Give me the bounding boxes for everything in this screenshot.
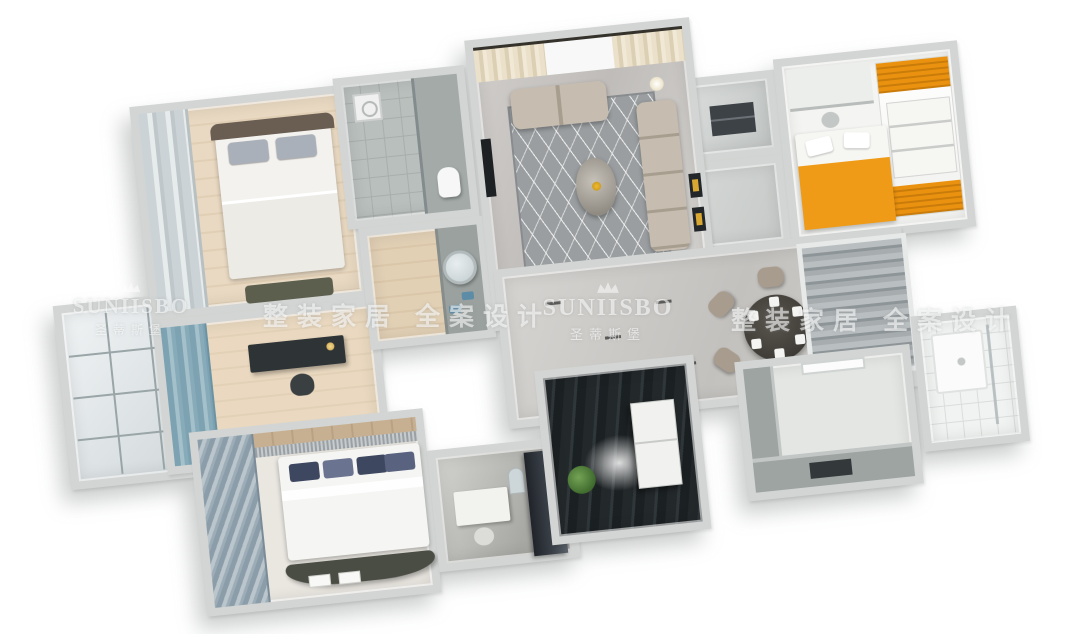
laundry-cabinet (630, 399, 683, 489)
desk-lamp (326, 342, 335, 351)
room-vanity (358, 216, 496, 351)
office-desk (453, 487, 510, 526)
kids-pillow (844, 132, 870, 148)
study-chair (289, 372, 315, 396)
tile-joint (545, 301, 561, 306)
orange-wardrobe-band (889, 180, 964, 217)
office-chair (473, 526, 495, 546)
orange-blanket (798, 157, 896, 230)
orange-wardrobe-band (876, 56, 951, 93)
kids-chair (821, 111, 841, 129)
room-kitchen (734, 344, 924, 502)
art-print (692, 179, 699, 192)
navy-pillow (288, 461, 320, 482)
shower-glass (986, 324, 999, 424)
shower-drain (957, 357, 966, 366)
kitchen-window (801, 357, 866, 376)
room-laundry (534, 355, 711, 546)
living-window (544, 36, 614, 75)
blue-towel (449, 305, 462, 314)
room-master-bedroom (129, 84, 370, 321)
cream-curtain-right (611, 29, 685, 68)
kids-desk (786, 61, 874, 112)
plate (792, 306, 803, 317)
washing-machine (352, 92, 383, 123)
kids-pillow (805, 135, 834, 157)
dining-chair (705, 288, 737, 321)
table-flowers (592, 181, 602, 191)
page-canvas: { "scene": { "type": "3D apartment floor… (0, 0, 1080, 608)
cream-curtain-left (473, 43, 547, 82)
shower-tray (930, 329, 988, 394)
room-second-bedroom (189, 408, 442, 617)
tile-joint (655, 300, 671, 305)
master-bed (214, 120, 345, 279)
toilet (436, 166, 461, 198)
room-bathroom2 (910, 306, 1030, 452)
room-kids-bedroom (773, 40, 977, 245)
plate (748, 311, 759, 322)
navy-pillow (322, 458, 354, 479)
floor-lamp (649, 76, 664, 91)
wall-art-frame (692, 207, 706, 232)
tv-panel (481, 139, 497, 198)
navy-pillow (384, 451, 416, 472)
arch-mirror (507, 467, 526, 495)
floor-magazine (338, 571, 361, 585)
plate (769, 296, 780, 307)
floor-magazine (308, 574, 331, 588)
master-wardrobe (138, 109, 209, 312)
plate (795, 334, 806, 345)
tile-joint (605, 335, 621, 340)
master-pillow (228, 139, 270, 165)
closet-shelf (709, 102, 756, 136)
study-desk (248, 335, 346, 373)
kids-bed (795, 125, 897, 230)
blue-towel (461, 291, 474, 300)
dining-chair (757, 266, 785, 289)
bedroom2-blinds (197, 434, 270, 608)
bedroom2-bed (278, 443, 430, 561)
floorplan-render (42, 0, 1044, 633)
wardrobe-drawers (886, 96, 958, 178)
plate (751, 338, 762, 349)
washer-door (361, 100, 379, 118)
master-bench (245, 277, 334, 304)
room-bathroom1 (332, 65, 479, 230)
art-print (695, 213, 702, 226)
master-bed-headboard (210, 112, 335, 141)
master-duvet (222, 190, 346, 280)
master-pillow (275, 134, 317, 160)
wall-art-frame (688, 173, 702, 198)
navy-pillow (356, 454, 388, 475)
